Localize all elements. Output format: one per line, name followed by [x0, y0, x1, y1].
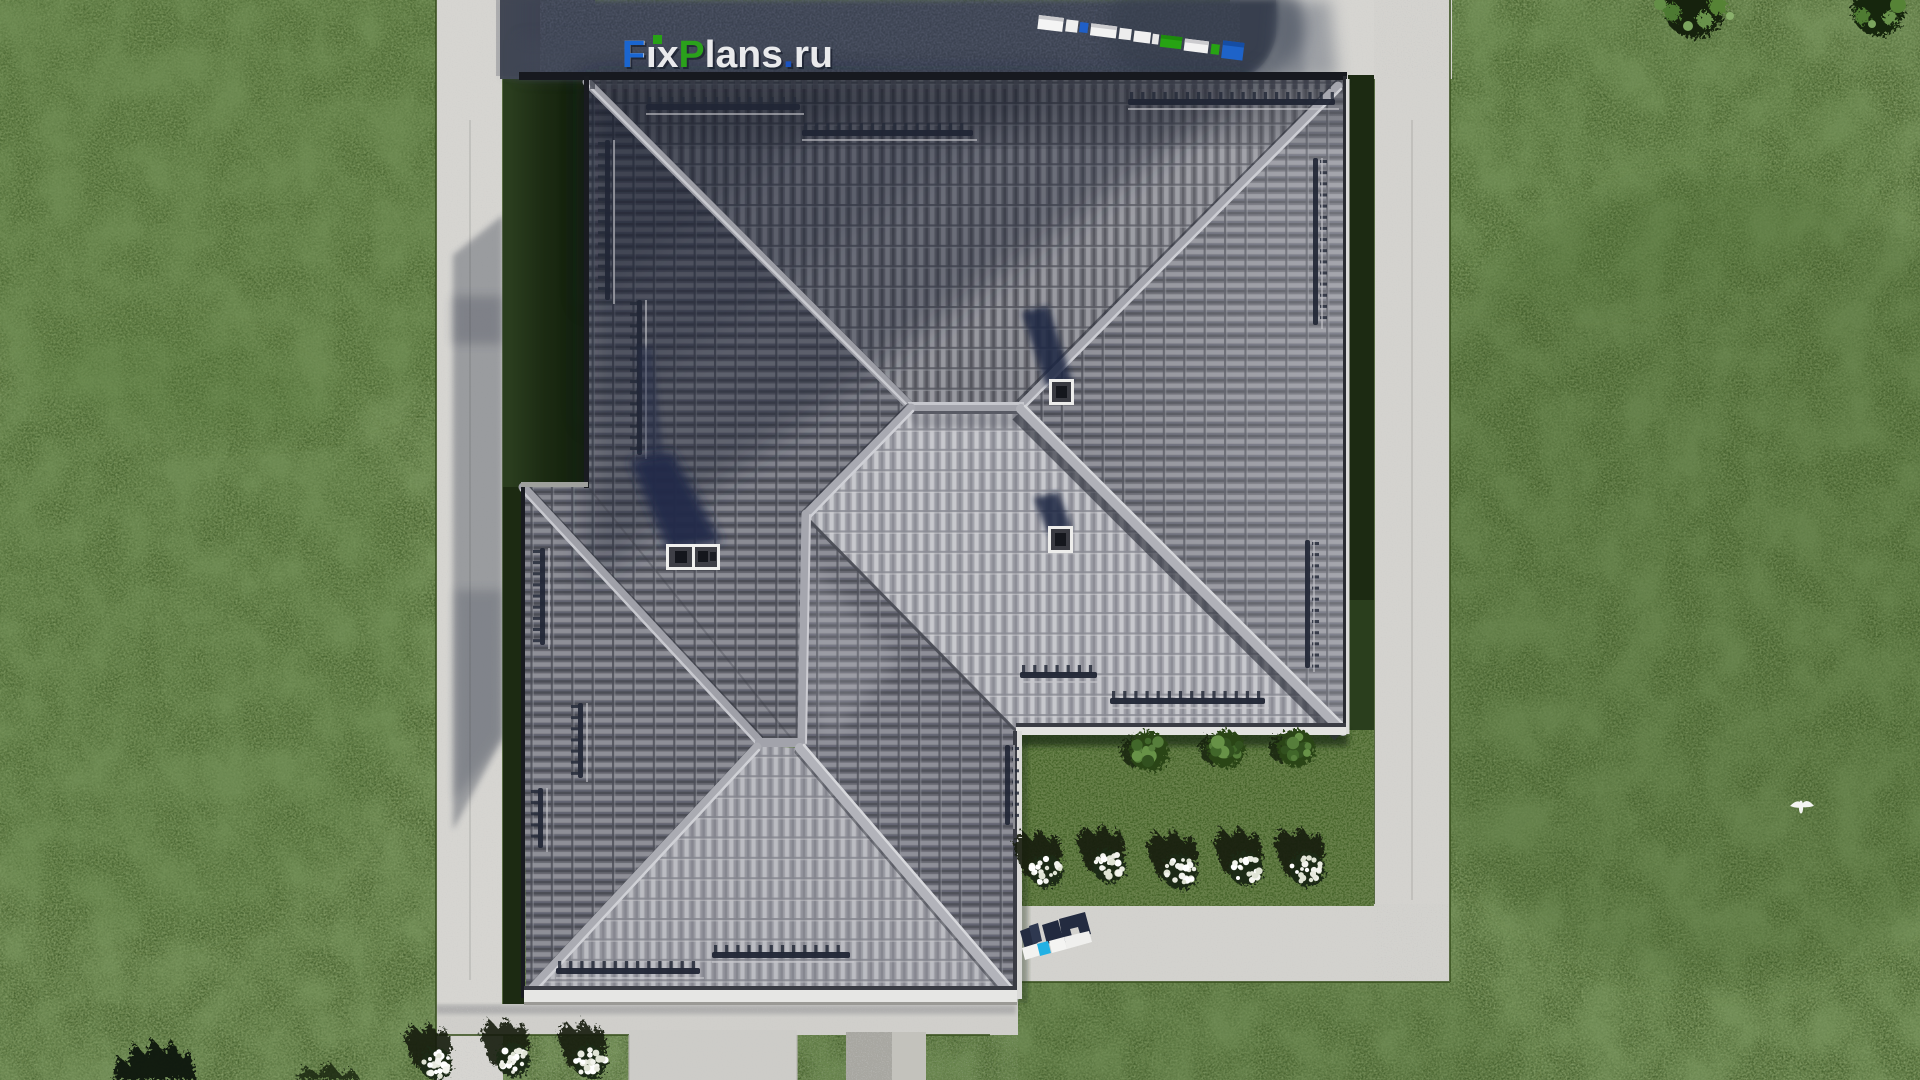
svg-text:F: F	[622, 34, 645, 76]
